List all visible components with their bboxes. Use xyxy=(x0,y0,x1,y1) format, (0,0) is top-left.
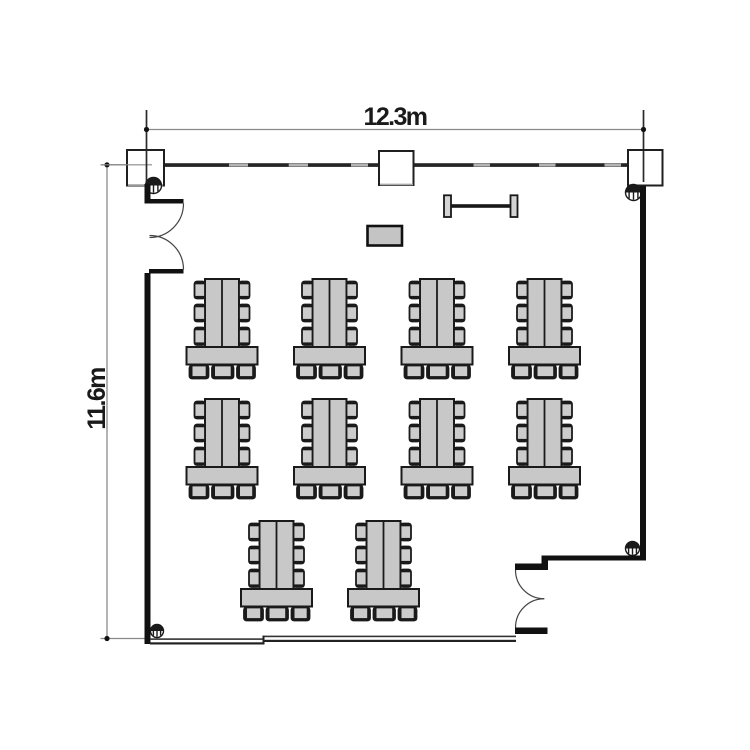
svg-text:12.3m: 12.3m xyxy=(364,103,427,131)
svg-text:11.6m: 11.6m xyxy=(83,368,111,430)
